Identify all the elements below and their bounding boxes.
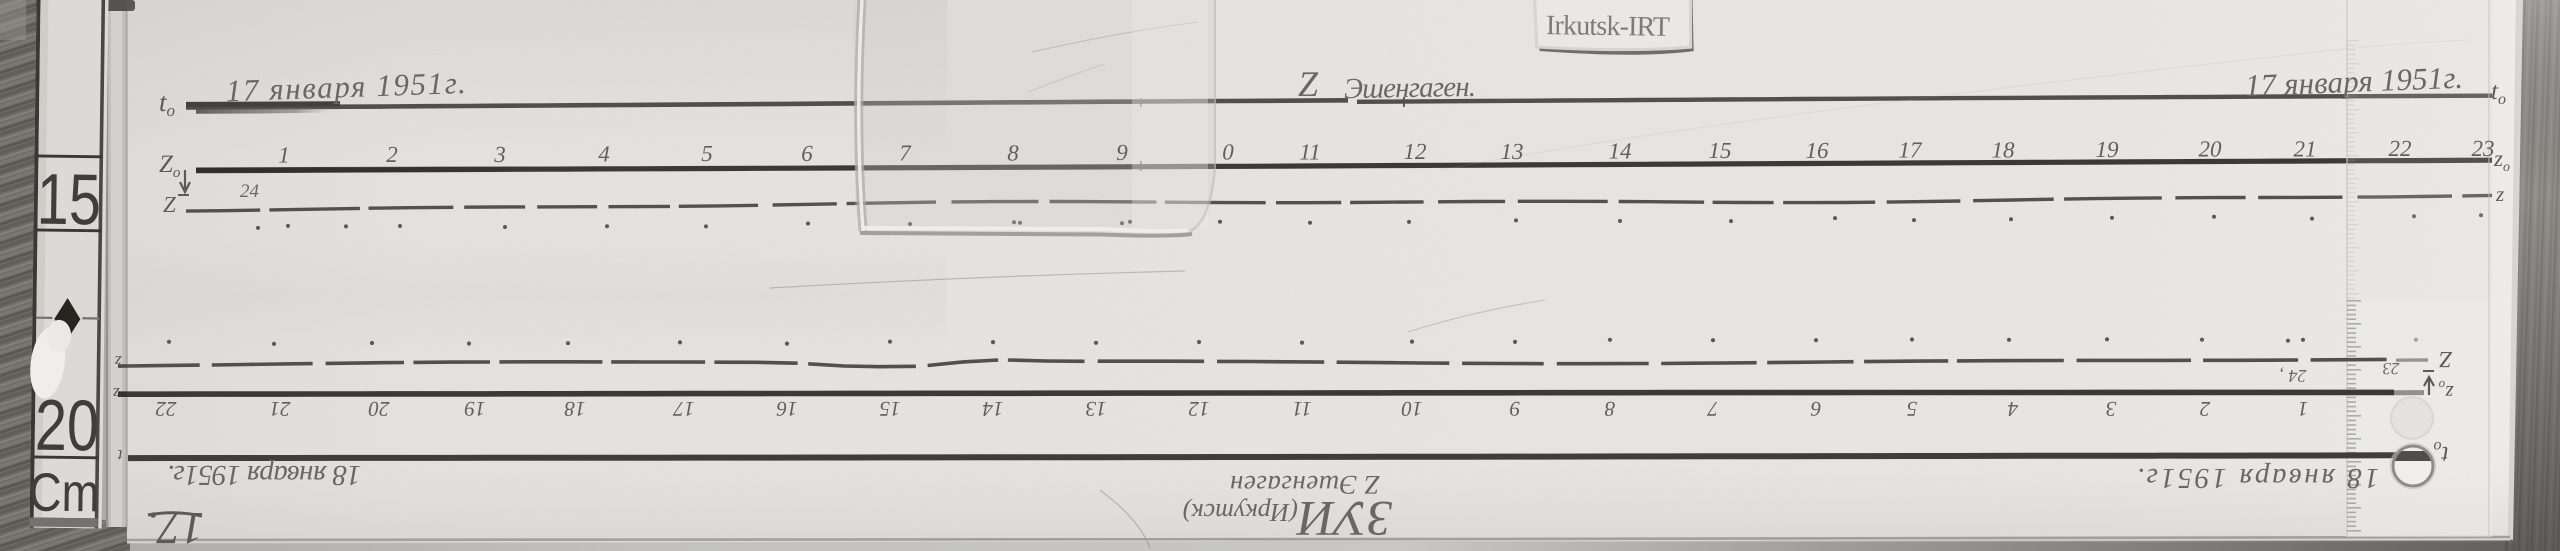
svg-text:Cm: Cm — [28, 463, 99, 524]
svg-text:z: z — [114, 352, 122, 371]
svg-text:z: z — [112, 384, 120, 403]
svg-text:15: 15 — [36, 160, 101, 241]
